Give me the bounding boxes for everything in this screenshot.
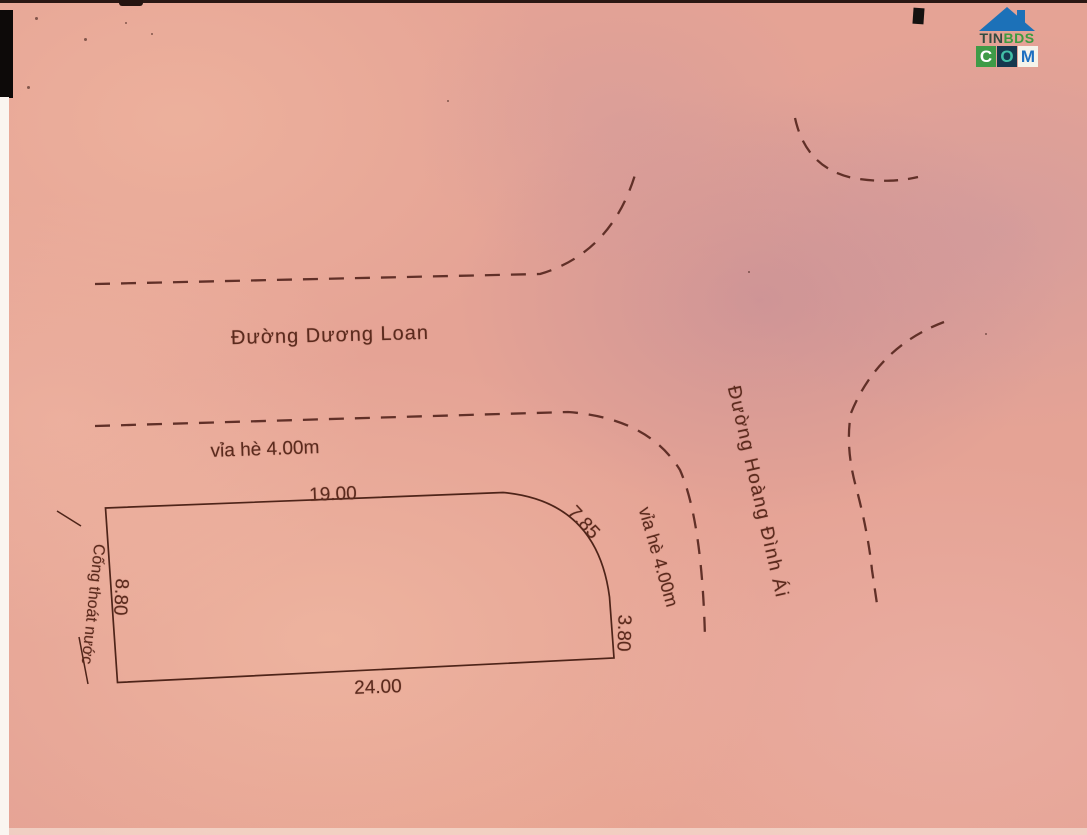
photo-edge-left-bar [0,10,13,98]
speckle-dot [27,86,30,89]
road-edge-sidewalk [95,412,705,638]
site-plan-photo: Đường Dương Loan Đường Hoàng Đình Ái vỉa… [0,0,1087,835]
parcel-outline [106,493,615,683]
drain-line-upper [57,511,81,526]
sidewalk-label-left: vỉa hè 4.00m [210,437,319,463]
speckle-dot [84,38,87,41]
photo-edge-blob [119,0,143,6]
watermark-com-blocks: C O M [976,46,1038,67]
plan-linework [0,0,1087,835]
watermark-bds: BDS [1004,30,1035,46]
speckle-dot [125,22,127,24]
dimension-bottom: 24.00 [354,676,402,700]
watermark-wordmark: TINBDS [979,31,1034,45]
watermark-letter-m: M [1018,46,1038,67]
watermark-tin: TIN [979,30,1003,46]
watermark-letter-c: C [976,46,996,67]
speckle-dot [151,33,153,35]
dimension-top: 19.00 [309,483,357,507]
speckle-dot [447,100,449,102]
photo-edge-bottom [9,828,1087,835]
dimension-right: 3.80 [611,614,634,652]
tinbds-watermark: TINBDS C O M [972,7,1042,67]
speckle-dot [985,333,987,335]
road-edge-top [95,168,637,284]
dimension-left: 8.80 [108,578,132,616]
speckle-dot [35,17,38,20]
road-edge-right [849,322,944,604]
road-edge-upper-right [795,118,918,181]
photo-edge-tick [912,8,924,25]
watermark-letter-o: O [997,46,1017,67]
photo-edge-left-margin [0,97,9,835]
photo-edge-top [0,0,1087,3]
speckle-dot [748,271,750,273]
